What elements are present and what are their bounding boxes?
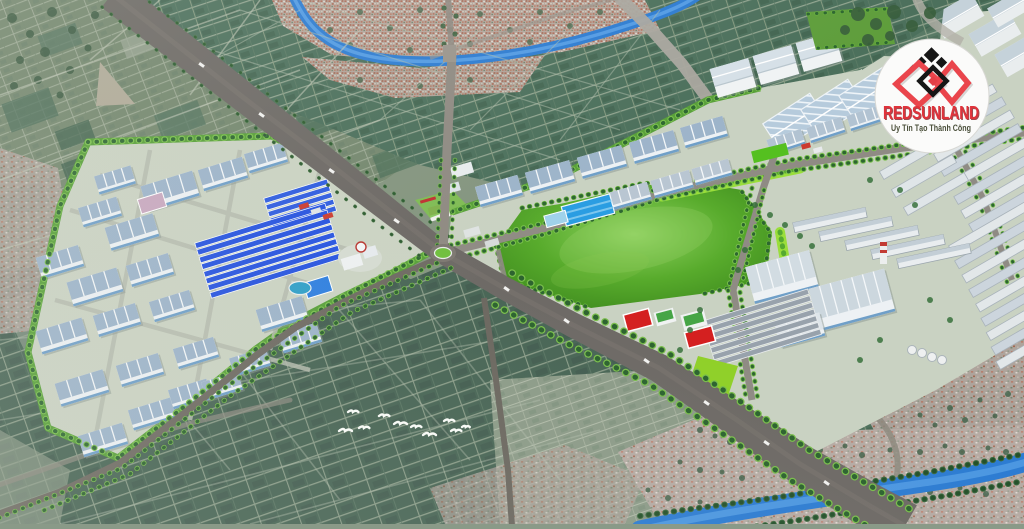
svg-text:REDSUNLAND: REDSUNLAND xyxy=(883,103,979,123)
svg-text:Uy Tín Tạo Thành Công: Uy Tín Tạo Thành Công xyxy=(891,123,971,133)
